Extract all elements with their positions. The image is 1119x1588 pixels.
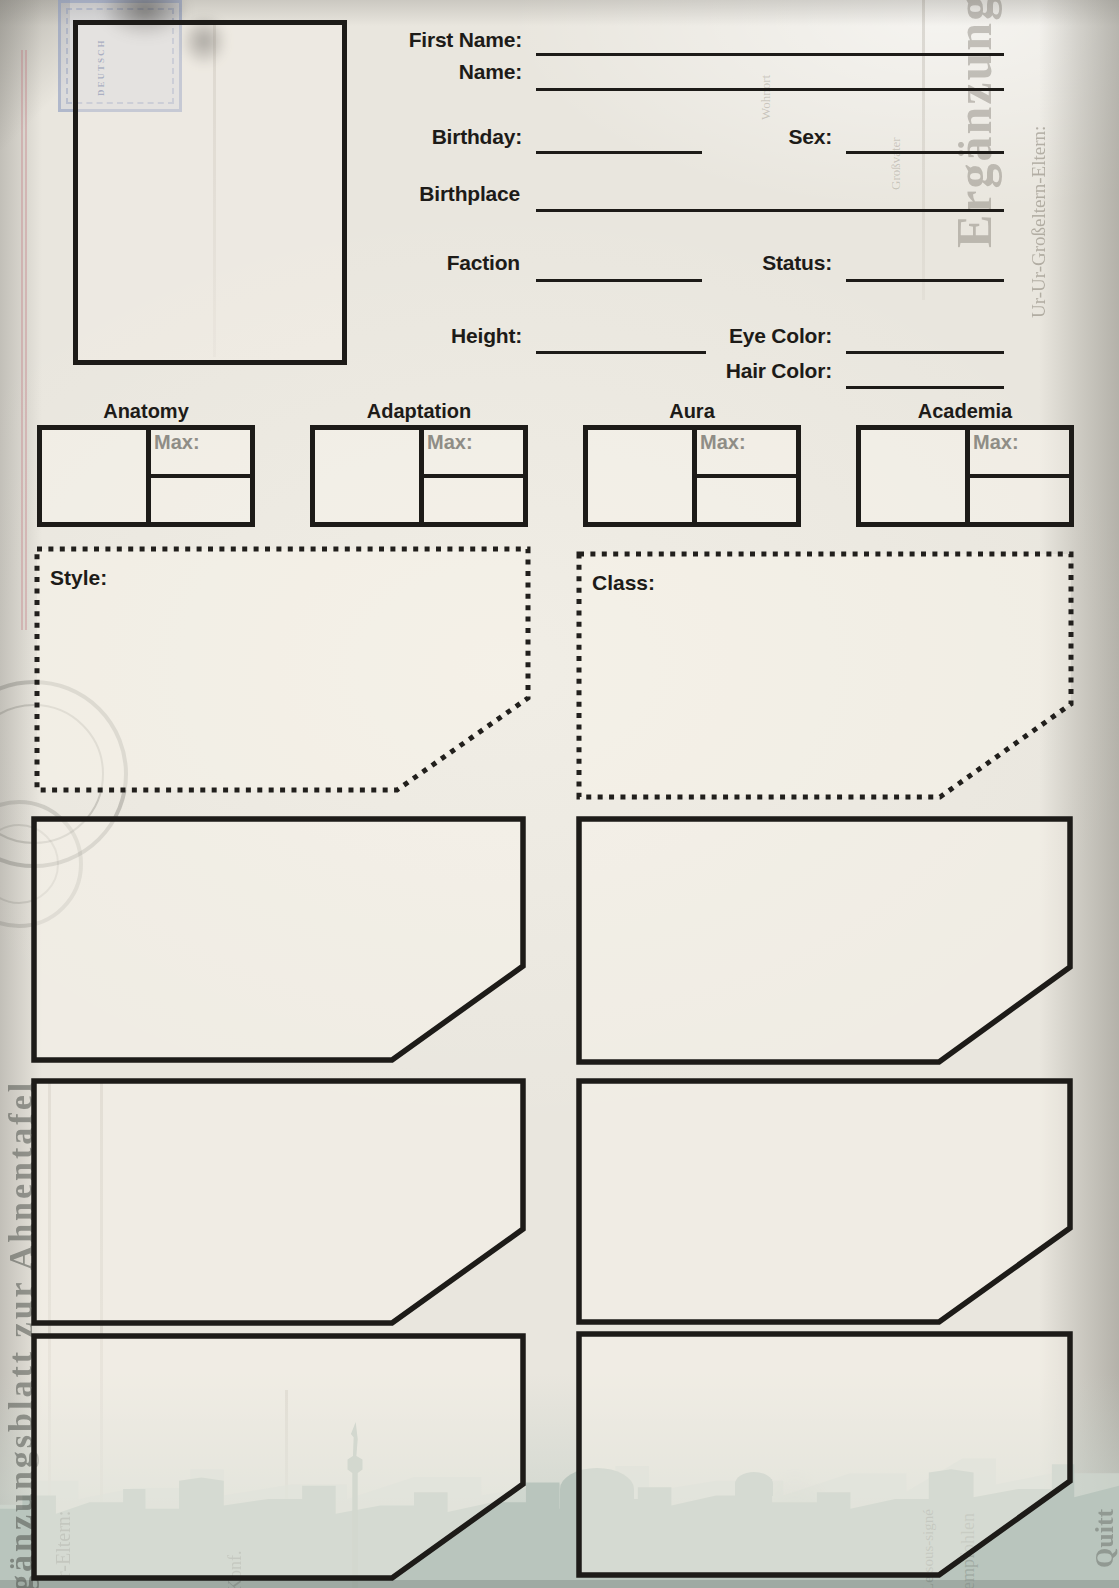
ghost-text-grossvater: Großvater bbox=[888, 137, 904, 190]
stat-box-aura: Max: bbox=[583, 425, 801, 527]
birthday-label: Birthday: bbox=[432, 126, 522, 148]
red-margin-line bbox=[21, 50, 23, 630]
name-label: Name: bbox=[459, 61, 522, 83]
anatomy-max-cell[interactable]: Max: bbox=[151, 430, 250, 478]
paper-streak bbox=[922, 0, 925, 300]
eye-color-label: Eye Color: bbox=[729, 325, 832, 347]
style-panel[interactable] bbox=[34, 546, 532, 794]
stat-box-academia: Max: bbox=[856, 425, 1074, 527]
character-sheet-page: DEUTSCH gänzungsblatt zur Ahnentafel Erg… bbox=[0, 0, 1119, 1588]
ghost-text-wohnort: Wohnort bbox=[758, 75, 774, 120]
ghost-text-right-margin: Ur-Ur-Großeltern-Eltern: bbox=[1028, 126, 1050, 318]
page-bottom-edge bbox=[0, 1580, 1119, 1588]
sex-line[interactable] bbox=[846, 151, 1004, 154]
ability-panel-3[interactable] bbox=[31, 1078, 526, 1326]
aura-max-cell[interactable]: Max: bbox=[697, 430, 796, 478]
max-label: Max: bbox=[700, 431, 746, 453]
first-name-line[interactable] bbox=[536, 53, 1004, 56]
adaptation-value-cell[interactable] bbox=[315, 430, 419, 522]
ability-panel-5[interactable] bbox=[31, 1333, 526, 1581]
ghost-text-quitt: Quitt bbox=[1090, 1509, 1119, 1568]
birthplace-line[interactable] bbox=[536, 209, 1004, 212]
portrait-box[interactable] bbox=[73, 20, 347, 365]
stat-title-academia: Academia bbox=[856, 400, 1074, 423]
birthday-line[interactable] bbox=[536, 151, 702, 154]
ability-panel-2[interactable] bbox=[576, 816, 1073, 1065]
faction-line[interactable] bbox=[536, 279, 702, 282]
hair-color-label: Hair Color: bbox=[726, 360, 832, 382]
height-label: Height: bbox=[451, 325, 522, 347]
faction-label: Faction bbox=[447, 252, 520, 274]
ability-panel-6[interactable] bbox=[576, 1331, 1073, 1578]
ability-panel-1[interactable] bbox=[31, 816, 526, 1063]
academia-max-cell[interactable]: Max: bbox=[970, 430, 1069, 478]
stat-title-adaptation: Adaptation bbox=[310, 400, 528, 423]
stat-title-anatomy: Anatomy bbox=[37, 400, 255, 423]
eye-color-line[interactable] bbox=[846, 351, 1004, 354]
stat-box-anatomy: Max: bbox=[37, 425, 255, 527]
class-label: Class: bbox=[592, 571, 655, 595]
status-line[interactable] bbox=[846, 279, 1004, 282]
anatomy-value-cell[interactable] bbox=[42, 430, 146, 522]
aura-current-cell[interactable] bbox=[697, 478, 796, 522]
academia-value-cell[interactable] bbox=[861, 430, 965, 522]
sex-label: Sex: bbox=[788, 126, 832, 148]
max-label: Max: bbox=[427, 431, 473, 453]
status-label: Status: bbox=[762, 252, 832, 274]
aura-value-cell[interactable] bbox=[588, 430, 692, 522]
max-label: Max: bbox=[154, 431, 200, 453]
ability-panel-4[interactable] bbox=[576, 1078, 1073, 1325]
first-name-label: First Name: bbox=[409, 29, 522, 51]
stat-title-aura: Aura bbox=[583, 400, 801, 423]
adaptation-max-cell[interactable]: Max: bbox=[424, 430, 523, 478]
max-label: Max: bbox=[973, 431, 1019, 453]
height-line[interactable] bbox=[536, 351, 706, 354]
stat-box-adaptation: Max: bbox=[310, 425, 528, 527]
style-label: Style: bbox=[50, 566, 107, 590]
academia-current-cell[interactable] bbox=[970, 478, 1069, 522]
hair-color-line[interactable] bbox=[846, 386, 1004, 389]
anatomy-current-cell[interactable] bbox=[151, 478, 250, 522]
birthplace-label: Birthplace bbox=[419, 183, 520, 205]
red-margin-line bbox=[25, 50, 27, 630]
name-line[interactable] bbox=[536, 88, 1004, 91]
adaptation-current-cell[interactable] bbox=[424, 478, 523, 522]
